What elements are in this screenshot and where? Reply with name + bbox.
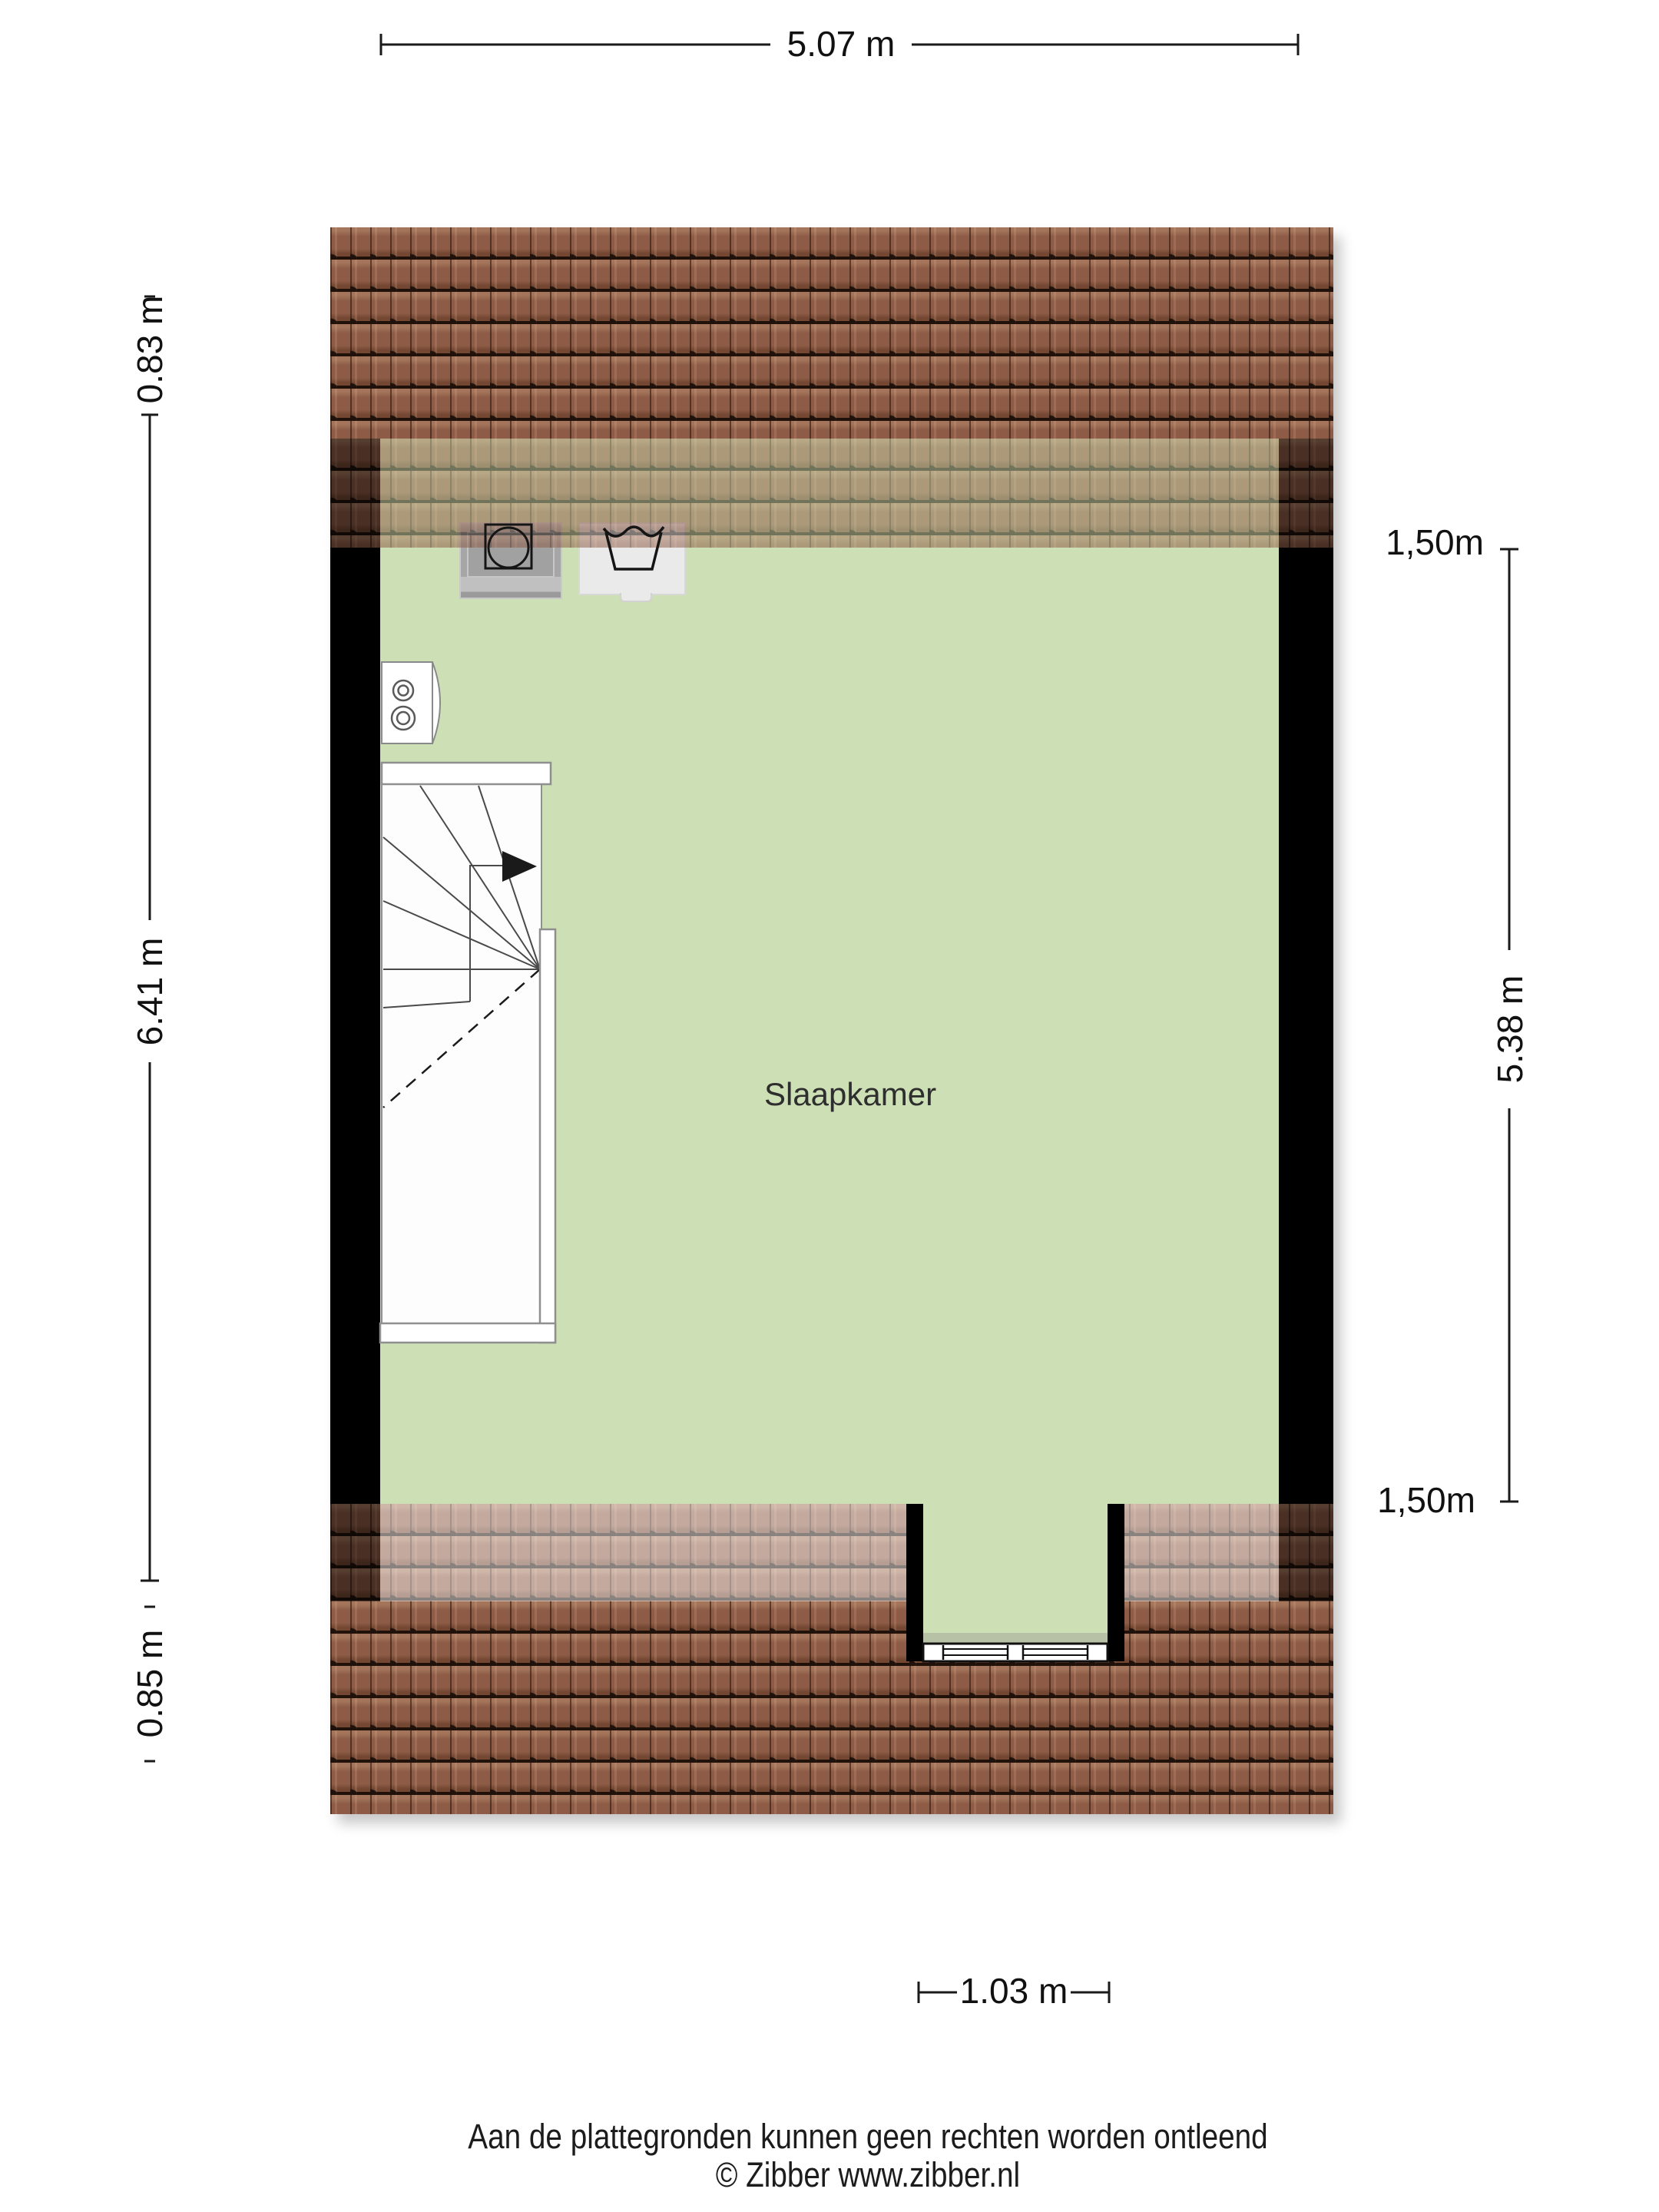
footer-disclaimer: Aan de plattegronden kunnen geen rechten… [468,2117,1267,2157]
dimension-right-height-top: 1,50m [1386,525,1484,560]
wall-right [1279,439,1333,1601]
dormer-window-sill [923,1633,1108,1644]
roof-top [330,227,1333,439]
roof-bottom [330,1601,1333,1814]
floorplan-page: 5.07 m 0.83 m 6.41 m 0.85 m 1,50m 5.38 m… [0,0,1659,2212]
dimension-top-width: 5.07 m [787,26,896,61]
dormer-recess [923,1504,1108,1644]
laundry-basket-notch [620,593,652,602]
dormer-wall-right [1108,1504,1124,1661]
footer-copyright: © Zibber www.zibber.nl [716,2155,1020,2195]
room-label: Slaapkamer [764,1076,936,1113]
roof-bottom-overlay [330,1504,1333,1601]
dormer-wall-left [906,1504,923,1661]
dimension-right-room-depth: 5.38 m [1492,975,1528,1084]
dimension-left-roof-top: 0.83 m [132,296,167,404]
roof-top-overlay [330,439,1333,548]
dimension-right-height-bottom: 1,50m [1377,1482,1475,1518]
floorplan [330,227,1333,1814]
dimension-left-room-depth: 6.41 m [132,938,167,1046]
dimension-left-roof-bottom: 0.85 m [132,1630,167,1738]
wall-left [330,439,380,1601]
dimension-bottom-dormer-width: 1.03 m [960,1973,1068,2008]
